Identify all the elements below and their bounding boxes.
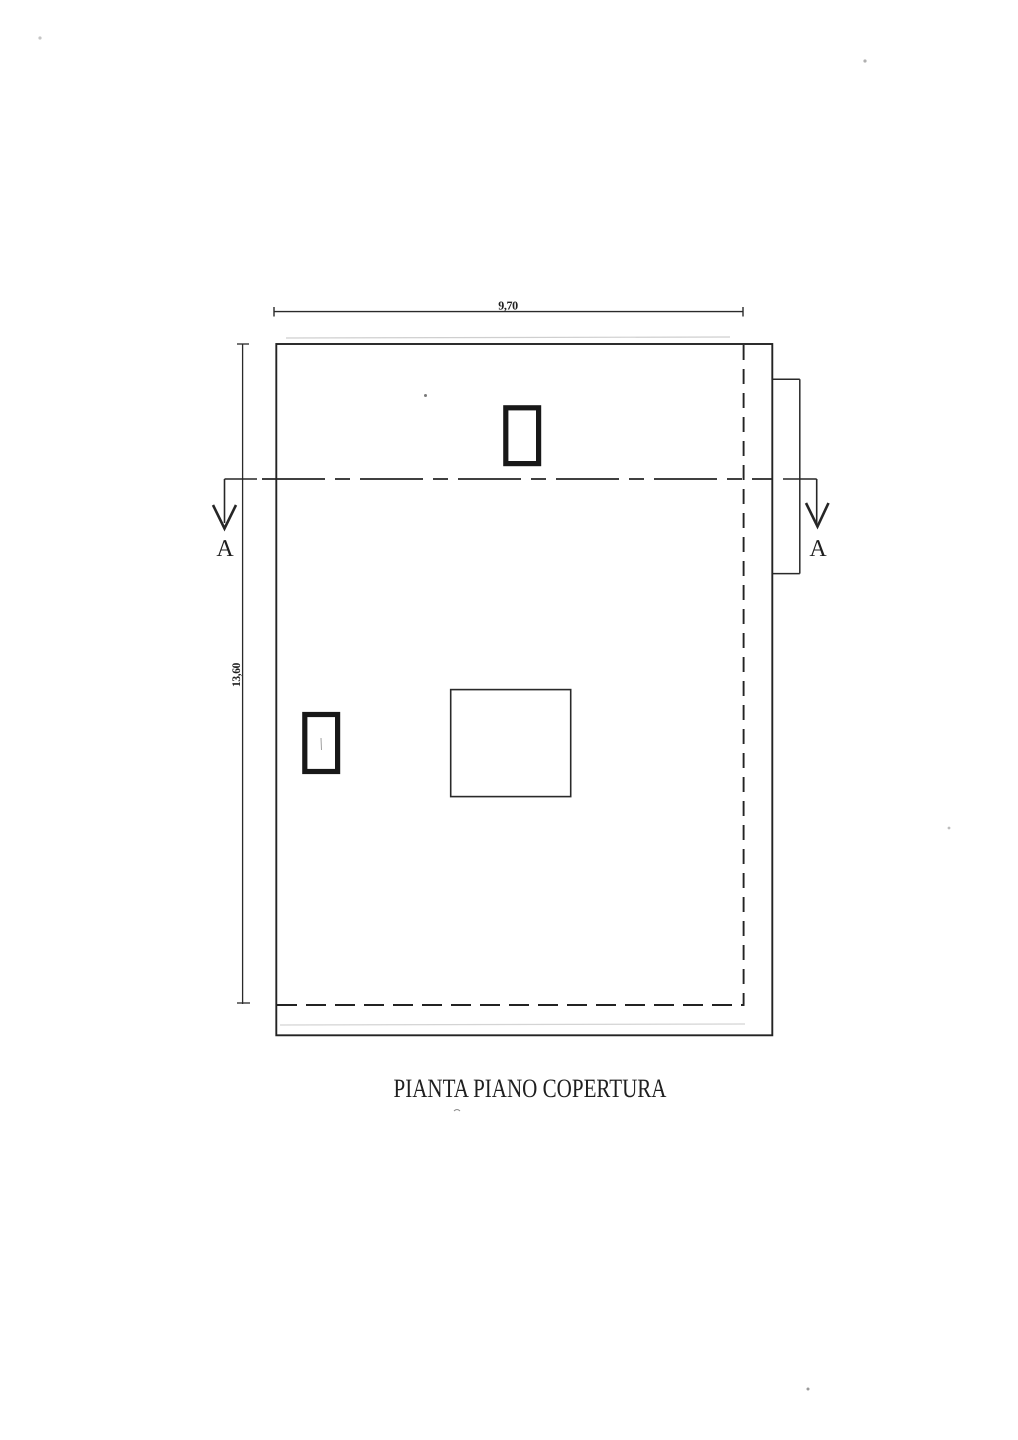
svg-text:PIANTA PIANO COPERTURA: PIANTA PIANO COPERTURA (394, 1073, 667, 1103)
svg-text:9,70: 9,70 (498, 299, 518, 313)
svg-text:A: A (809, 536, 827, 562)
svg-text:A: A (216, 536, 234, 562)
svg-text:13,60: 13,60 (231, 662, 243, 687)
